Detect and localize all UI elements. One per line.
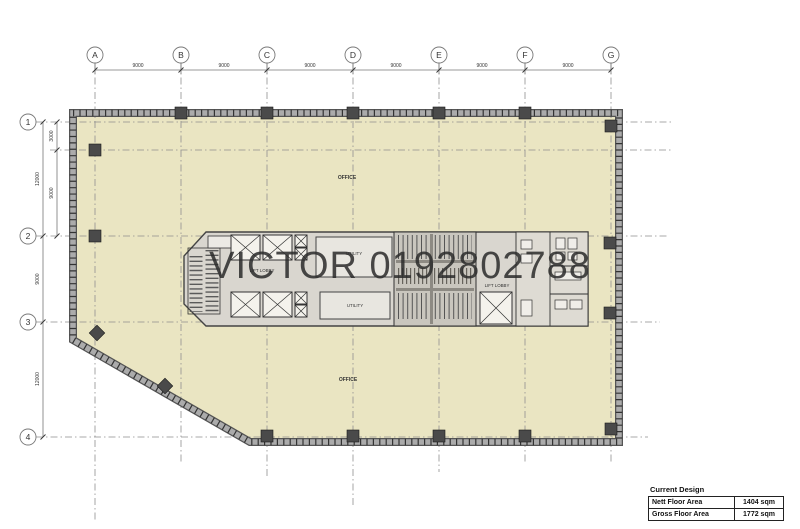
dim-label: 9000 [304, 63, 315, 69]
dim-label: 9000 [49, 187, 55, 198]
nett-floor-area-value: 1404 sqm [735, 497, 784, 509]
table-row: Gross Floor Area 1772 sqm [649, 509, 784, 521]
grid-row-label: 3 [26, 317, 31, 327]
table-row: Nett Floor Area 1404 sqm [649, 497, 784, 509]
floor-plan-page: 9000 9000 9000 9000 9000 9000 A B C D E … [0, 0, 800, 529]
grid-column-label: F [522, 50, 527, 60]
grid-column-label: A [92, 50, 98, 60]
dim-label: 12000 [35, 372, 41, 386]
office-top-label: OFFICE [338, 175, 357, 181]
row-grid-bubbles: 1 2 3 4 [20, 114, 36, 445]
left-dimension-chains: 3000 9000 12000 9000 12000 [35, 120, 60, 440]
column [605, 423, 617, 435]
utility-bottom-label: UTILITY [347, 303, 363, 308]
column-grid-bubbles: A B C D E F G [87, 47, 619, 63]
column [347, 107, 359, 119]
grid-column-label: G [608, 50, 615, 60]
grid-column-label: C [264, 50, 270, 60]
grid-row-label: 1 [26, 117, 31, 127]
gross-floor-area-label: Gross Floor Area [649, 509, 735, 521]
column [89, 144, 101, 156]
service-lift [480, 292, 512, 324]
column [604, 307, 616, 319]
column [605, 120, 617, 132]
grid-row-label: 2 [26, 231, 31, 241]
column [261, 107, 273, 119]
column [175, 107, 187, 119]
grid-row-label: 4 [26, 432, 31, 442]
grid-column-label: E [436, 50, 442, 60]
gross-floor-area-value: 1772 sqm [735, 509, 784, 521]
dim-label: 9000 [218, 63, 229, 69]
column [519, 430, 531, 442]
column [347, 430, 359, 442]
column [433, 430, 445, 442]
summary-title: Current Design [650, 485, 788, 494]
dim-label: 9000 [132, 63, 143, 69]
dim-label: 9000 [562, 63, 573, 69]
dim-label: 9000 [390, 63, 401, 69]
top-dimension-line: 9000 9000 9000 9000 9000 9000 [93, 63, 614, 74]
nett-floor-area-label: Nett Floor Area [649, 497, 735, 509]
summary-table: Nett Floor Area 1404 sqm Gross Floor Are… [648, 496, 784, 521]
column [604, 237, 616, 249]
area-summary: Current Design Nett Floor Area 1404 sqm … [648, 485, 788, 521]
column [519, 107, 531, 119]
watermark-text: VICTOR 0192802788 [196, 247, 604, 285]
column [89, 230, 101, 242]
grid-column-label: D [350, 50, 356, 60]
dim-label: 9000 [476, 63, 487, 69]
office-bottom-label: OFFICE [339, 377, 358, 383]
dim-label: 12000 [35, 172, 41, 186]
dim-label: 3000 [49, 130, 55, 141]
dim-label: 9000 [35, 273, 41, 284]
grid-column-label: B [178, 50, 184, 60]
column [261, 430, 273, 442]
column [433, 107, 445, 119]
